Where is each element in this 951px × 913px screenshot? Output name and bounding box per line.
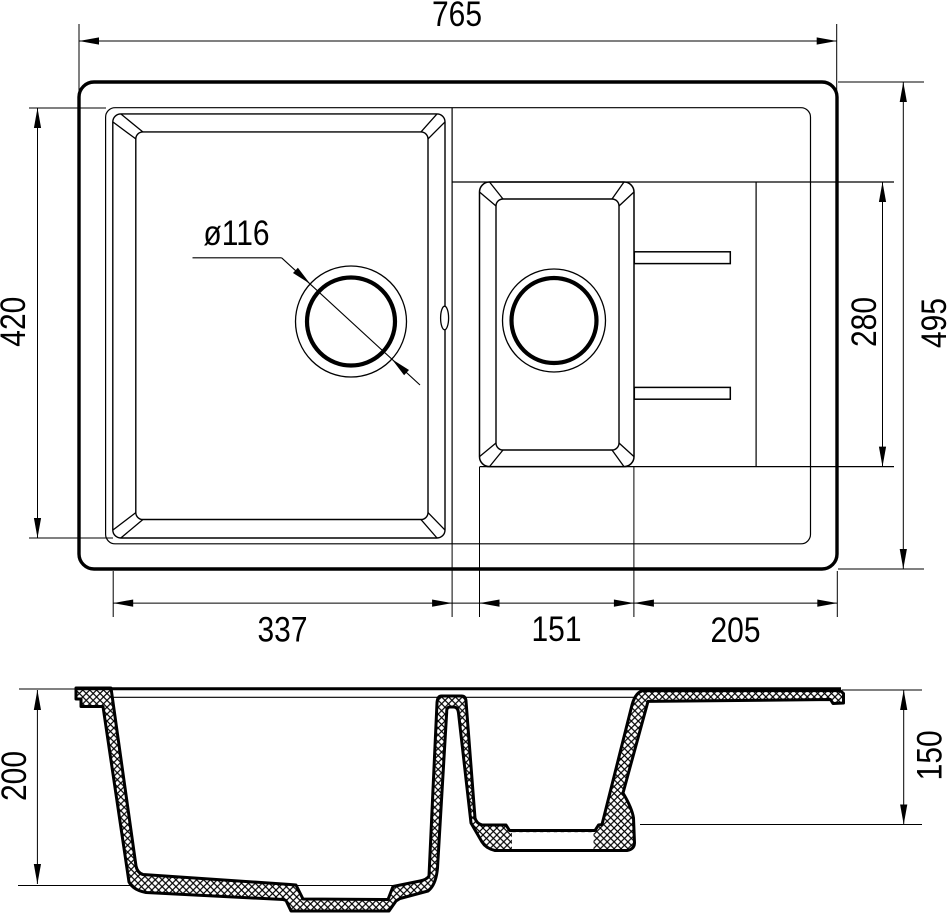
svg-text:280: 280 (844, 297, 884, 347)
svg-text:495: 495 (914, 298, 951, 348)
svg-text:205: 205 (710, 610, 760, 650)
svg-text:ø116: ø116 (203, 213, 269, 253)
svg-text:420: 420 (0, 297, 33, 347)
svg-text:337: 337 (257, 609, 307, 649)
svg-text:151: 151 (531, 609, 581, 649)
svg-text:200: 200 (0, 751, 33, 801)
svg-text:150: 150 (909, 730, 949, 780)
svg-text:765: 765 (432, 0, 482, 33)
